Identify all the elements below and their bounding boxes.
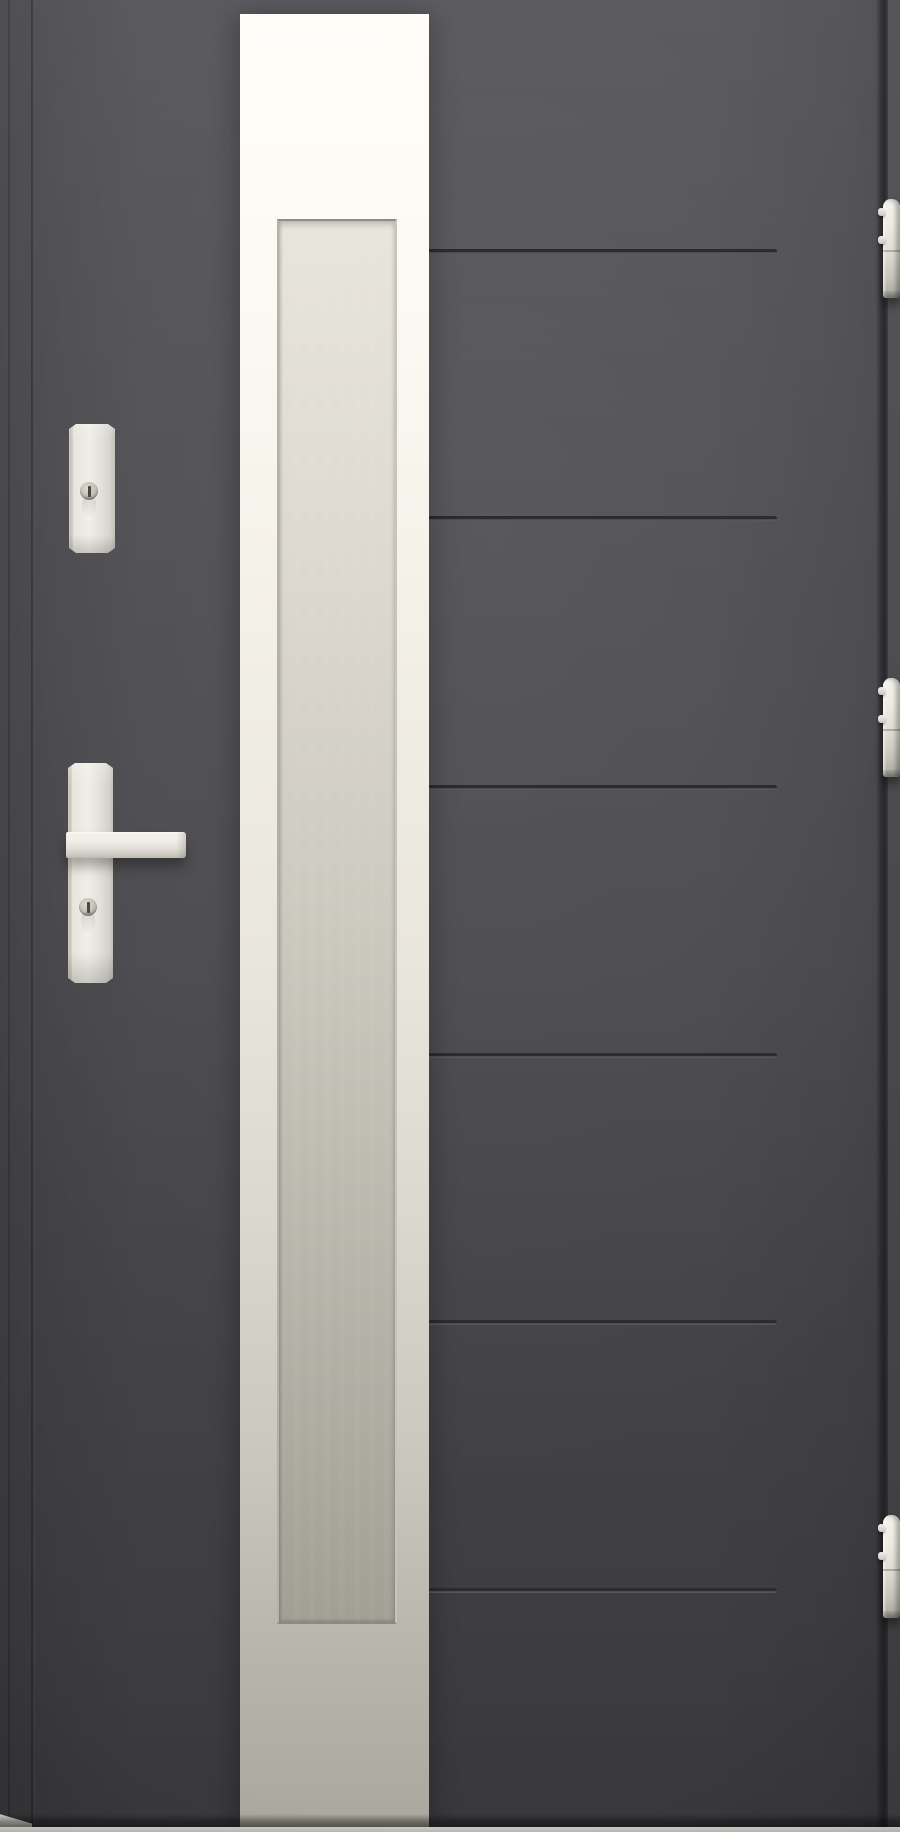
deadbolt-escutcheon (69, 424, 115, 553)
hinge-pin (878, 236, 885, 244)
door-scene (0, 0, 900, 1832)
handle-escutcheon (68, 763, 113, 983)
hinge (883, 199, 900, 298)
hinge-pin (878, 1552, 885, 1560)
panel-groove (429, 1320, 777, 1325)
panel-groove (429, 516, 777, 521)
frame-left-seam (8, 0, 10, 1832)
hinge-pin (878, 208, 885, 216)
floor-threshold-line (0, 1827, 900, 1832)
hinge-pin (878, 1524, 885, 1532)
door-handle-lever (66, 832, 186, 858)
hinge-pin (878, 687, 885, 695)
deadbolt-keyway-recess (82, 496, 96, 520)
door-leaf-left-highlight (34, 0, 35, 1832)
frosted-glazing (277, 219, 397, 1624)
hinge (883, 1515, 900, 1618)
panel-groove (429, 785, 777, 790)
hinge (883, 678, 900, 777)
hinge-pin (878, 715, 885, 723)
panel-groove (429, 249, 777, 254)
panel-groove (429, 1588, 777, 1593)
panel-groove (429, 1053, 777, 1058)
photo-vignette (0, 0, 900, 1832)
glass-panel-strip (240, 14, 429, 1832)
handle-keyway-recess (81, 912, 95, 936)
threshold-shadow (0, 1814, 900, 1827)
